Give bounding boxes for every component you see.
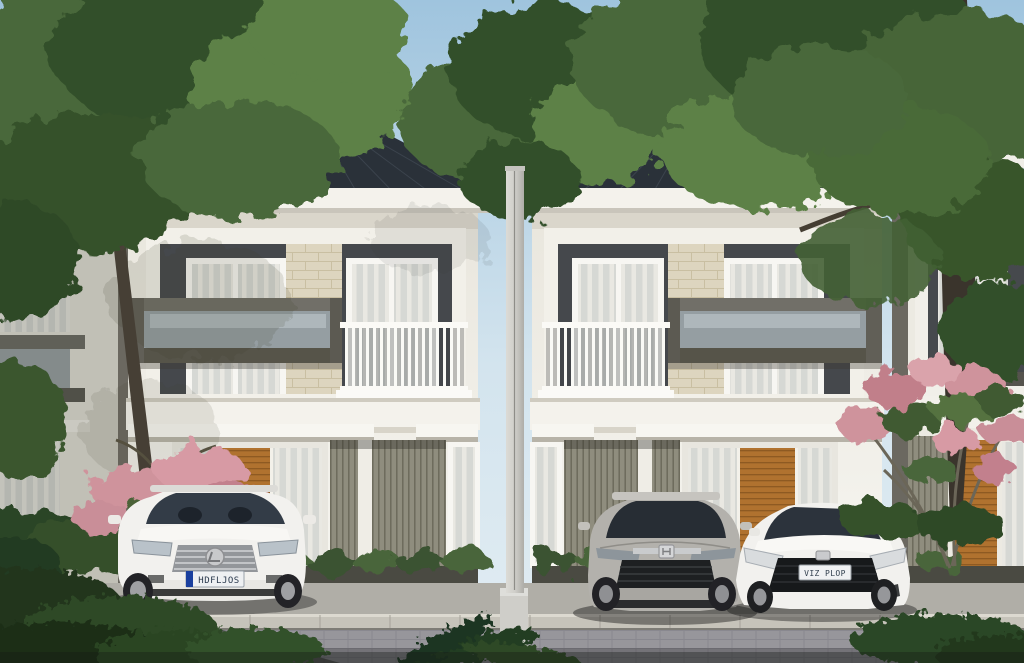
bottom-vignette	[0, 652, 1024, 663]
lexus-emblem	[206, 548, 224, 566]
hrv-mirror-left	[578, 522, 590, 530]
lexus-license-plate: HDFLJOS	[186, 571, 244, 587]
hrv-windshield	[606, 501, 726, 538]
scene-canvas: HDFLJOS	[0, 0, 1024, 663]
lexus-license-plate-text: HDFLJOS	[198, 576, 239, 586]
car-lexus-suv: HDFLJOS	[107, 485, 317, 615]
crz-license-plate-text: VIZ PLOP	[804, 569, 846, 578]
lexus-headlight-left	[132, 540, 172, 556]
lexus-headlight-right	[258, 540, 298, 556]
lexus-mirror-right	[303, 515, 316, 524]
lexus-mirror-left	[108, 515, 121, 524]
crz-license-plate: VIZ PLOP	[799, 565, 851, 580]
rendered-photo: HDFLJOS	[0, 0, 1024, 663]
crz-mirror-left	[749, 528, 760, 536]
roof-rails	[150, 485, 278, 492]
honda-emblem	[816, 551, 830, 560]
